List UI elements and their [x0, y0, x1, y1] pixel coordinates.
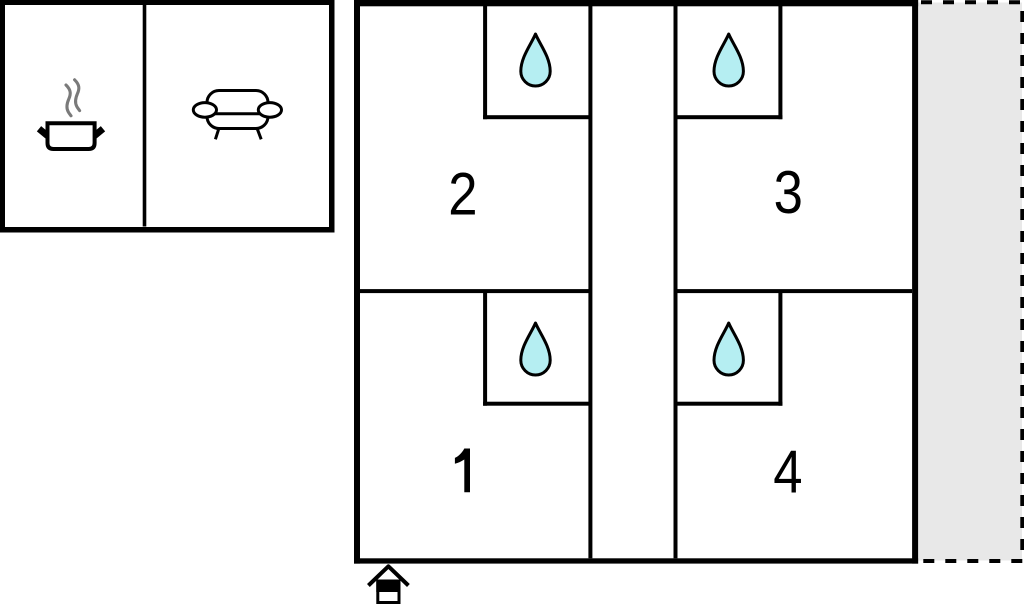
svg-text:3: 3	[774, 160, 803, 227]
svg-text:2: 2	[448, 161, 477, 228]
svg-text:4: 4	[773, 439, 802, 506]
